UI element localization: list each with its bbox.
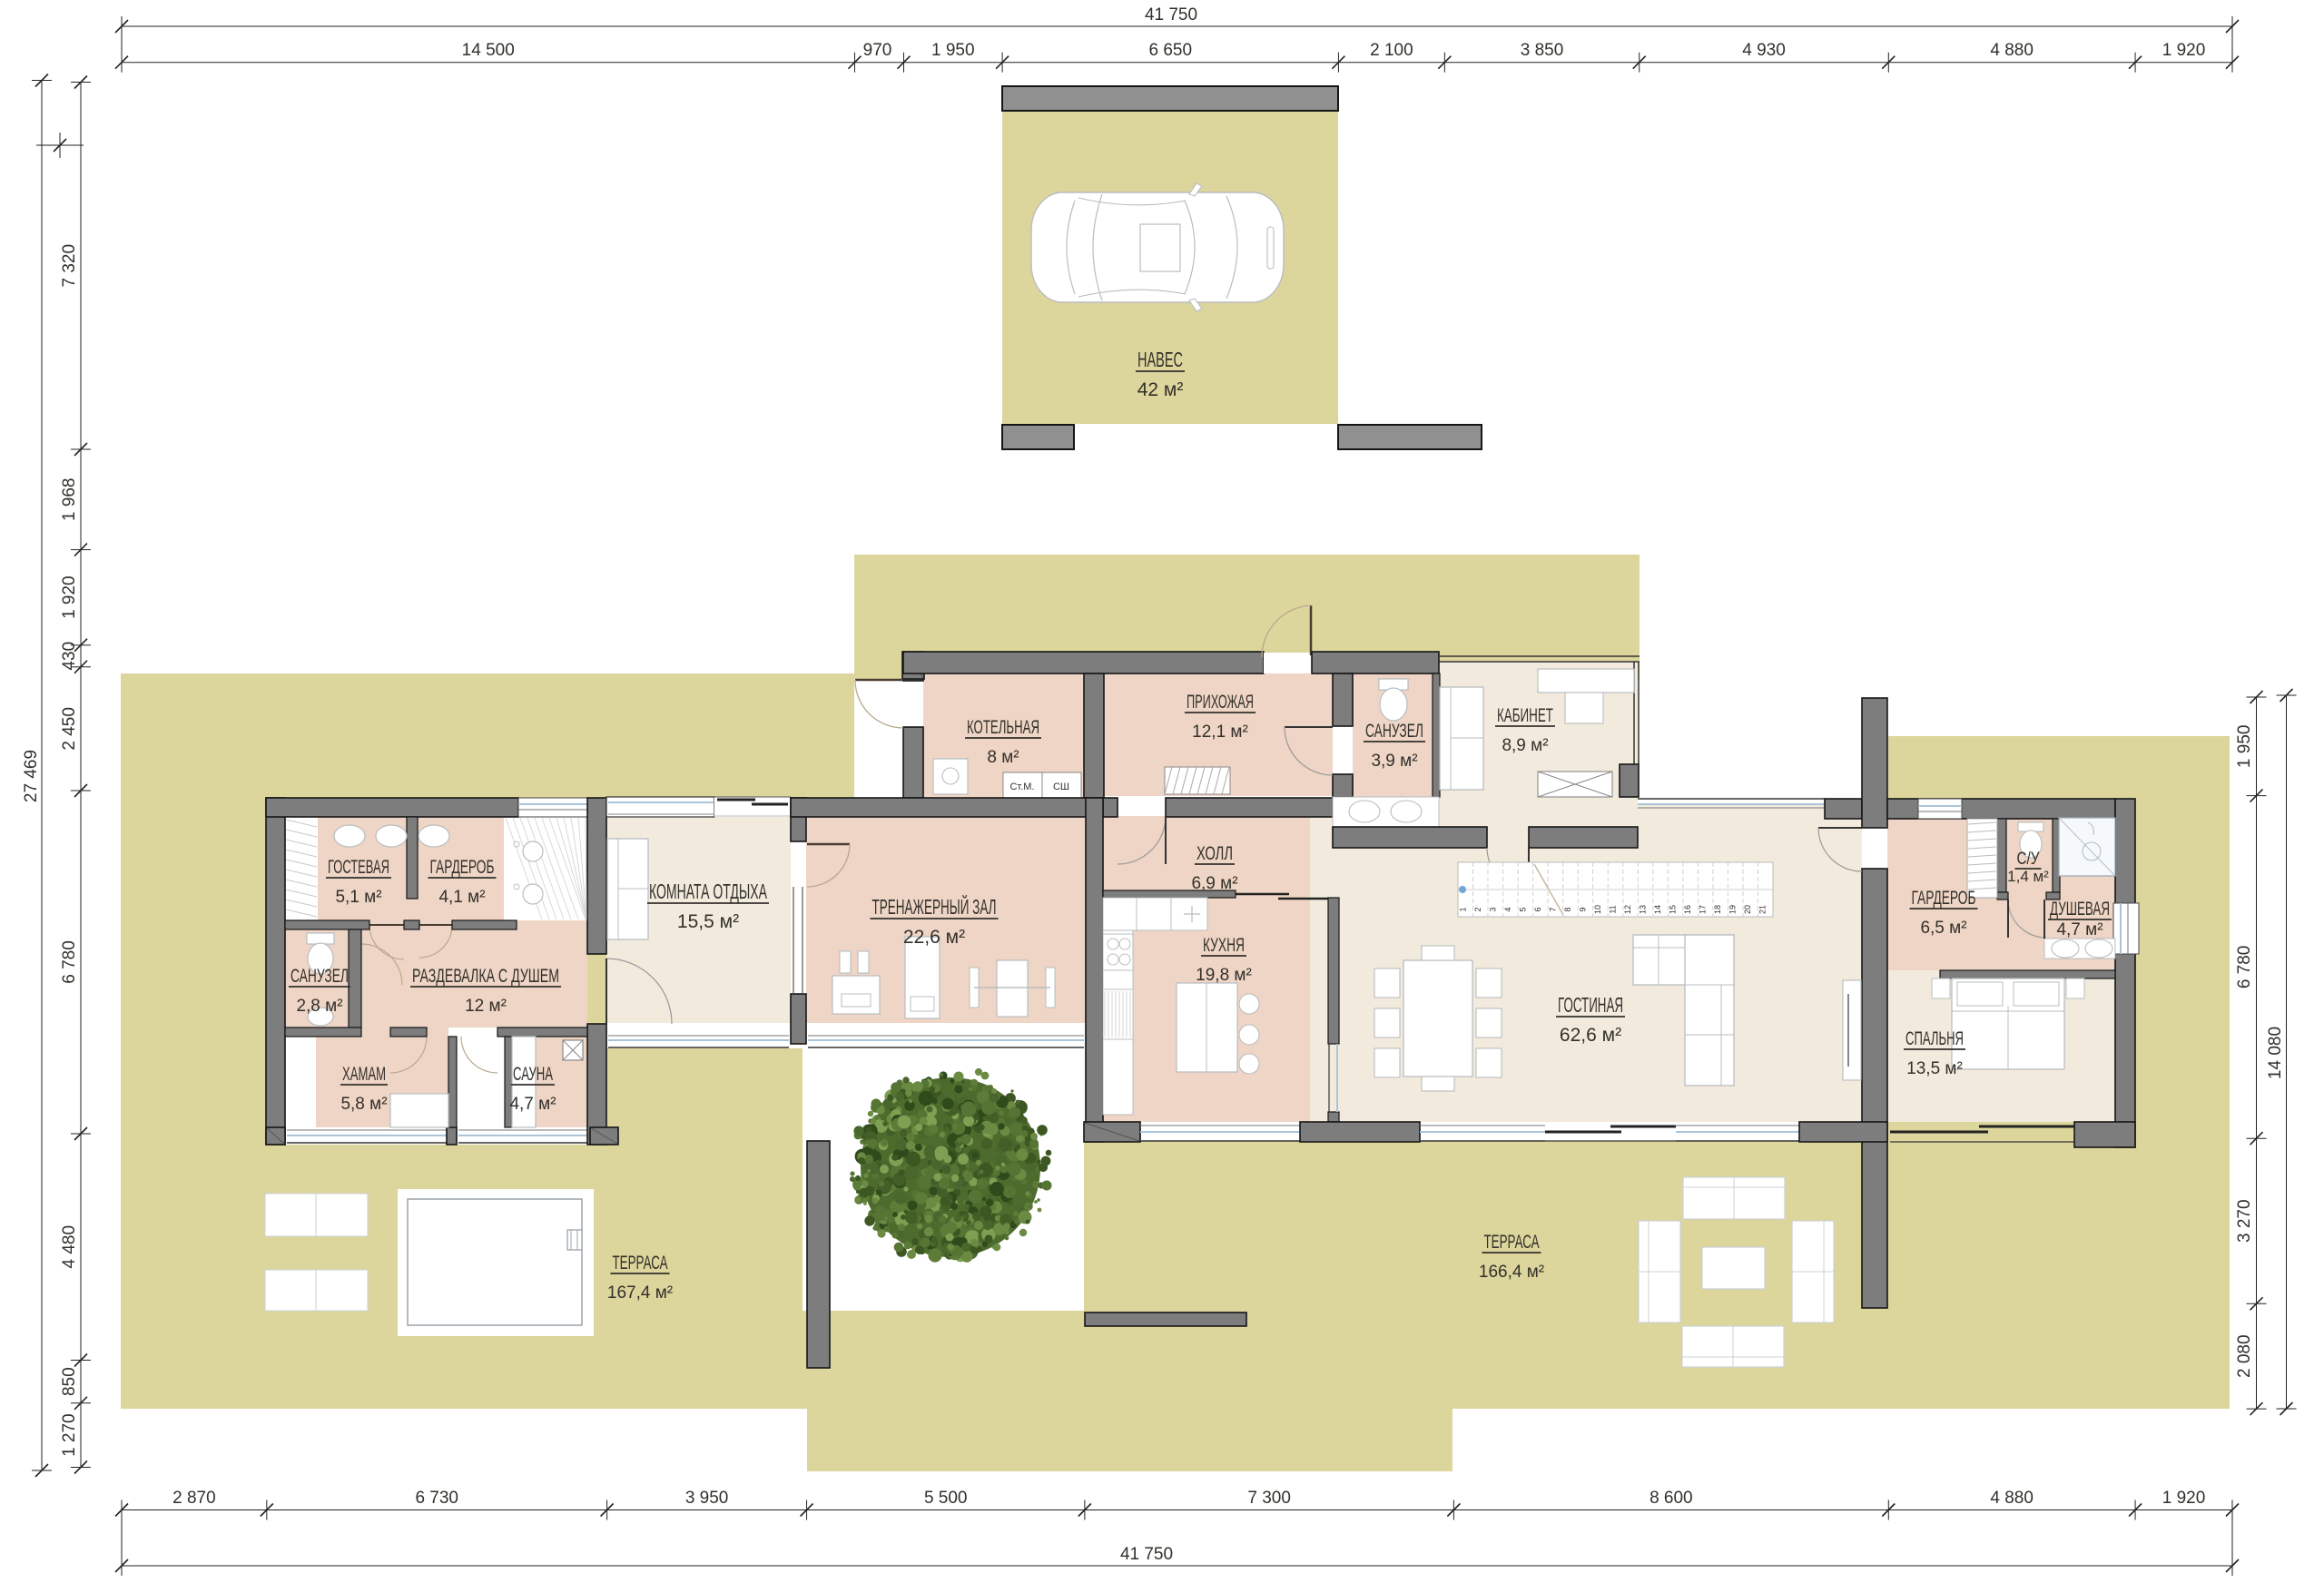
svg-text:6 780: 6 780	[60, 940, 79, 984]
svg-text:5: 5	[1518, 907, 1527, 911]
svg-text:12: 12	[1623, 905, 1632, 914]
svg-text:1 950: 1 950	[931, 41, 975, 60]
svg-text:21: 21	[1758, 905, 1768, 914]
svg-text:РАЗДЕВАЛКА С ДУШЕМ: РАЗДЕВАЛКА С ДУШЕМ	[412, 966, 559, 987]
svg-text:14 500: 14 500	[462, 41, 515, 60]
svg-text:22,6 м²: 22,6 м²	[903, 927, 965, 948]
svg-text:ГОСТИНАЯ: ГОСТИНАЯ	[1558, 993, 1623, 1017]
svg-text:12 м²: 12 м²	[465, 997, 507, 1016]
svg-text:4,7 м²: 4,7 м²	[2056, 920, 2102, 939]
svg-text:1 968: 1 968	[60, 478, 79, 522]
svg-text:166,4 м²: 166,4 м²	[1479, 1263, 1544, 1282]
svg-text:2 080: 2 080	[2235, 1334, 2254, 1378]
svg-text:42 м²: 42 м²	[1137, 379, 1184, 400]
svg-text:8,9 м²: 8,9 м²	[1502, 736, 1548, 755]
svg-text:11: 11	[1609, 905, 1618, 913]
svg-text:ГАРДЕРОБ: ГАРДЕРОБ	[430, 857, 495, 878]
svg-text:41 750: 41 750	[1145, 5, 1197, 25]
svg-text:850: 850	[60, 1367, 79, 1396]
svg-text:13: 13	[1639, 905, 1648, 914]
svg-text:ГОСТЕВАЯ: ГОСТЕВАЯ	[328, 857, 389, 878]
svg-text:62,6 м²: 62,6 м²	[1560, 1025, 1621, 1046]
svg-text:КОТЕЛЬНАЯ: КОТЕЛЬНАЯ	[967, 717, 1039, 738]
svg-text:20: 20	[1743, 905, 1752, 914]
svg-text:САНУЗЕЛ: САНУЗЕЛ	[290, 966, 349, 987]
svg-text:19,8 м²: 19,8 м²	[1196, 966, 1252, 985]
svg-text:ХОЛЛ: ХОЛЛ	[1196, 843, 1233, 864]
svg-text:14: 14	[1653, 905, 1662, 914]
svg-text:16: 16	[1683, 905, 1692, 914]
svg-text:8 600: 8 600	[1649, 1489, 1693, 1508]
svg-text:1 270: 1 270	[60, 1413, 79, 1457]
svg-text:2 100: 2 100	[1370, 41, 1413, 60]
svg-text:ДУШЕВАЯ: ДУШЕВАЯ	[2050, 899, 2110, 919]
svg-text:14 080: 14 080	[2266, 1027, 2285, 1079]
svg-text:7 300: 7 300	[1247, 1489, 1291, 1508]
svg-text:17: 17	[1699, 905, 1708, 914]
svg-text:8: 8	[1563, 907, 1572, 911]
svg-text:10: 10	[1593, 905, 1602, 914]
svg-text:1 920: 1 920	[60, 575, 79, 619]
svg-text:1 920: 1 920	[2162, 1489, 2206, 1508]
svg-text:970: 970	[863, 41, 892, 60]
svg-text:19: 19	[1728, 905, 1738, 914]
svg-text:5 500: 5 500	[924, 1489, 968, 1508]
svg-text:4 880: 4 880	[1990, 1489, 2033, 1508]
svg-text:СШ: СШ	[1053, 782, 1069, 792]
svg-text:8 м²: 8 м²	[987, 748, 1019, 767]
svg-text:САНУЗЕЛ: САНУЗЕЛ	[1365, 721, 1423, 742]
svg-text:3: 3	[1488, 907, 1497, 911]
svg-text:27 469: 27 469	[22, 750, 41, 802]
svg-text:1,4 м²: 1,4 м²	[2007, 868, 2049, 885]
svg-text:3 270: 3 270	[2235, 1199, 2254, 1243]
svg-text:12,1 м²: 12,1 м²	[1192, 723, 1248, 742]
svg-text:1 950: 1 950	[2235, 725, 2254, 769]
svg-text:С/У: С/У	[2017, 850, 2041, 869]
svg-text:7: 7	[1548, 907, 1557, 911]
svg-text:13,5 м²: 13,5 м²	[1906, 1059, 1963, 1078]
svg-text:2: 2	[1473, 907, 1482, 911]
svg-text:18: 18	[1713, 905, 1722, 914]
svg-text:ГАРДЕРОБ: ГАРДЕРОБ	[1912, 888, 1976, 909]
svg-text:6 780: 6 780	[2235, 946, 2254, 989]
svg-text:2,8 м²: 2,8 м²	[296, 997, 342, 1016]
svg-text:4 930: 4 930	[1742, 41, 1786, 60]
svg-text:3 850: 3 850	[1521, 41, 1564, 60]
svg-text:Ст.М.: Ст.М.	[1009, 782, 1034, 792]
svg-text:ТЕРРАСА: ТЕРРАСА	[613, 1253, 668, 1273]
svg-text:167,4 м²: 167,4 м²	[607, 1283, 673, 1303]
svg-text:ПРИХОЖАЯ: ПРИХОЖАЯ	[1187, 692, 1254, 713]
svg-text:1: 1	[1458, 907, 1467, 911]
svg-text:7 320: 7 320	[60, 244, 79, 288]
svg-text:9: 9	[1579, 907, 1588, 911]
svg-text:4: 4	[1503, 907, 1512, 911]
svg-text:15: 15	[1669, 905, 1678, 914]
svg-text:ХАМАМ: ХАМАМ	[342, 1064, 386, 1085]
svg-text:СПАЛЬНЯ: СПАЛЬНЯ	[1905, 1028, 1964, 1049]
svg-text:6 650: 6 650	[1148, 41, 1192, 60]
svg-text:КОМНАТА ОТДЫХА: КОМНАТА ОТДЫХА	[649, 880, 767, 903]
svg-text:41 750: 41 750	[1120, 1545, 1173, 1564]
svg-text:2 450: 2 450	[60, 707, 79, 751]
svg-text:6 730: 6 730	[415, 1489, 458, 1508]
svg-text:1 920: 1 920	[2162, 41, 2206, 60]
svg-text:6: 6	[1533, 907, 1542, 911]
svg-text:430: 430	[60, 642, 79, 671]
svg-text:ТРЕНАЖЕРНЫЙ ЗАЛ: ТРЕНАЖЕРНЫЙ ЗАЛ	[872, 894, 997, 919]
svg-text:КУХНЯ: КУХНЯ	[1203, 935, 1245, 956]
svg-text:ТЕРРАСА: ТЕРРАСА	[1484, 1232, 1540, 1253]
svg-text:4,1 м²: 4,1 м²	[438, 888, 485, 907]
svg-text:САУНА: САУНА	[513, 1064, 553, 1085]
svg-text:4,7 м²: 4,7 м²	[509, 1095, 556, 1114]
svg-text:4 880: 4 880	[1990, 41, 2033, 60]
svg-text:5,8 м²: 5,8 м²	[340, 1095, 387, 1114]
svg-text:5,1 м²: 5,1 м²	[335, 888, 381, 907]
svg-text:2 870: 2 870	[172, 1489, 216, 1508]
svg-text:6,9 м²: 6,9 м²	[1191, 874, 1237, 893]
svg-text:КАБИНЕТ: КАБИНЕТ	[1497, 705, 1553, 726]
svg-text:4 480: 4 480	[60, 1225, 79, 1269]
svg-text:НАВЕС: НАВЕС	[1137, 348, 1183, 371]
svg-text:6,5 м²: 6,5 м²	[1920, 919, 1966, 938]
svg-text:3 950: 3 950	[685, 1489, 729, 1508]
svg-text:3,9 м²: 3,9 м²	[1371, 752, 1417, 771]
svg-text:15,5 м²: 15,5 м²	[677, 911, 739, 932]
